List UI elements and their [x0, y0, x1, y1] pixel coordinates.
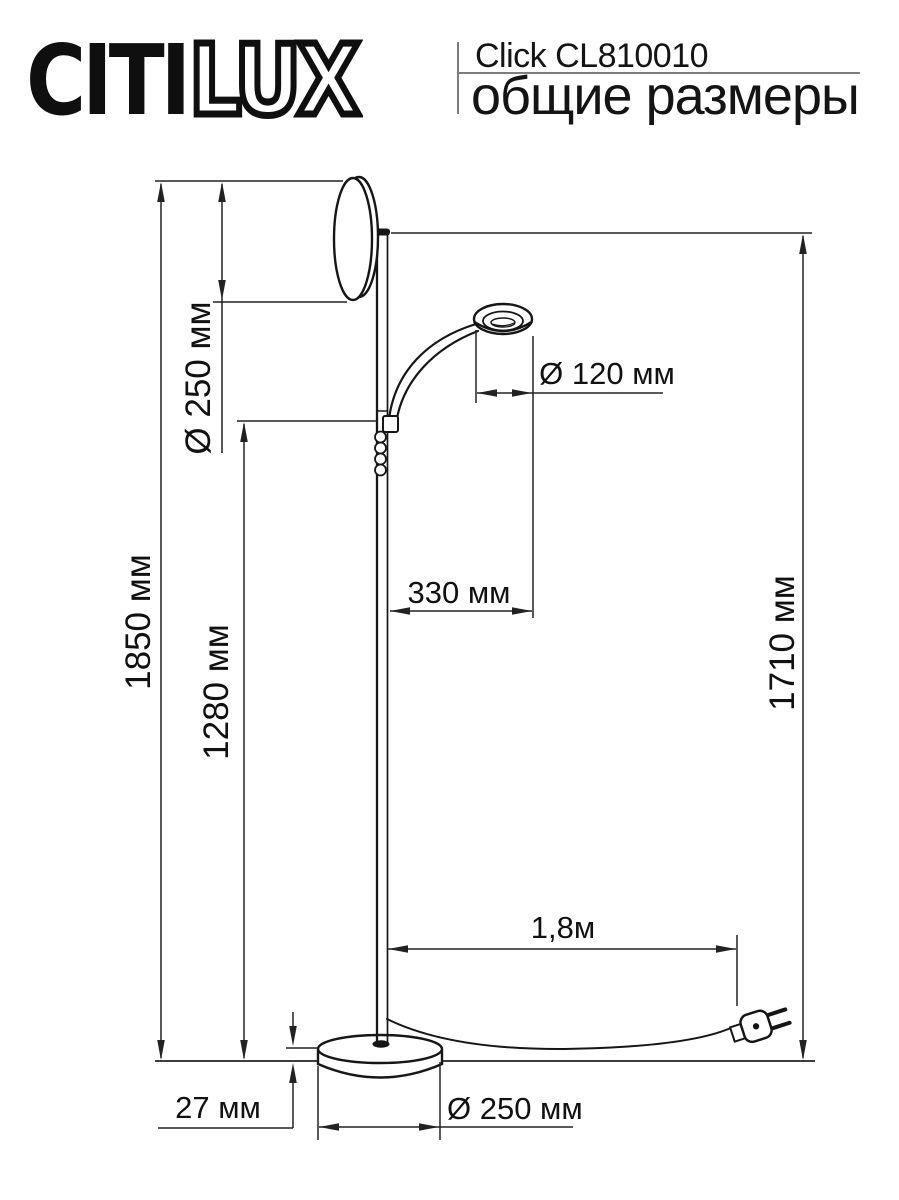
- main-shade-front-face: [334, 178, 372, 300]
- arrowhead-up: [218, 182, 226, 202]
- plug-prong-top: [768, 1009, 785, 1015]
- dim-label-reader-diameter: Ø 120 мм: [539, 356, 675, 391]
- arrowhead-down: [240, 1040, 248, 1060]
- arrowhead-down: [799, 1040, 807, 1060]
- dim-shade-diameter: Ø 250 мм: [179, 182, 347, 455]
- switch-button-2: [375, 443, 386, 454]
- arrowhead-down: [218, 280, 226, 300]
- dim-label-overall-height: 1850 мм: [119, 554, 158, 690]
- arrowhead-down: [157, 1040, 165, 1060]
- base-bottom-edge: [318, 1064, 442, 1078]
- arrowhead-right: [716, 945, 736, 953]
- switch-button-3: [375, 454, 386, 465]
- dim-label-arm-offset: 330 мм: [408, 575, 511, 610]
- arrowhead-left: [319, 1123, 339, 1131]
- dim-base-diameter: Ø 250 мм: [318, 1062, 583, 1140]
- dim-label-pole-height: 1710 мм: [763, 575, 802, 711]
- arm-mount: [383, 416, 398, 432]
- switch-button-1: [375, 432, 386, 443]
- arrowhead-right: [419, 1123, 439, 1131]
- arrowhead-right: [512, 389, 532, 397]
- base-top-face: [318, 1035, 442, 1063]
- product-dimension-sheet: CITILUX Click CL810010 общие размеры: [0, 0, 899, 1200]
- arrowhead-left: [477, 389, 497, 397]
- dim-overall-height: 1850 мм: [119, 181, 343, 1060]
- dim-label-base-diameter: Ø 250 мм: [447, 1091, 583, 1126]
- dim-label-cord-length: 1,8м: [531, 910, 595, 945]
- arrowhead-up: [799, 234, 807, 254]
- arrowhead-down: [289, 1026, 297, 1046]
- floor-lamp-dimension-drawing: 1850 мм Ø 250 мм 1280 мм: [0, 0, 899, 1200]
- dim-cord-length: 1,8м: [388, 910, 737, 1006]
- dim-arm-offset: 330 мм: [390, 575, 532, 615]
- base-collar: [373, 1040, 390, 1048]
- arrowhead-up: [157, 182, 165, 202]
- dim-label-shade-diameter: Ø 250 мм: [179, 301, 218, 454]
- dim-switch-height: 1280 мм: [197, 421, 377, 1060]
- arrowhead-up: [240, 422, 248, 442]
- flex-arm-inner: [396, 331, 478, 424]
- plug-prong-bottom: [772, 1023, 789, 1029]
- power-plug: [728, 1003, 792, 1048]
- dimension-annotations: 1850 мм Ø 250 мм 1280 мм: [119, 181, 815, 1140]
- arrowhead-right: [512, 607, 532, 615]
- dim-label-base-height: 27 мм: [175, 1090, 261, 1125]
- arrowhead-left: [388, 945, 408, 953]
- dim-base-height: 27 мм: [158, 1012, 318, 1128]
- arrowhead-up: [289, 1063, 297, 1083]
- dim-label-switch-height: 1280 мм: [197, 624, 236, 760]
- switch-button-4: [375, 465, 386, 476]
